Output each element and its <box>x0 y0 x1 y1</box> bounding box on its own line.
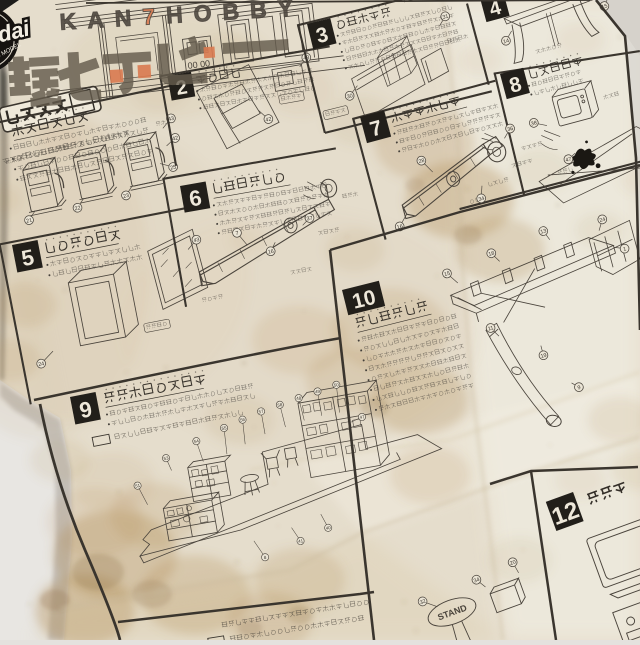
svg-text:22: 22 <box>74 205 81 212</box>
svg-text:43: 43 <box>193 237 200 244</box>
svg-text:21: 21 <box>26 218 33 225</box>
svg-text:37: 37 <box>306 216 313 223</box>
svg-text:23: 23 <box>123 193 130 200</box>
svg-text:42: 42 <box>172 135 179 142</box>
svg-text:24: 24 <box>38 361 45 368</box>
svg-text:42: 42 <box>265 117 272 124</box>
svg-text:16: 16 <box>267 249 274 256</box>
